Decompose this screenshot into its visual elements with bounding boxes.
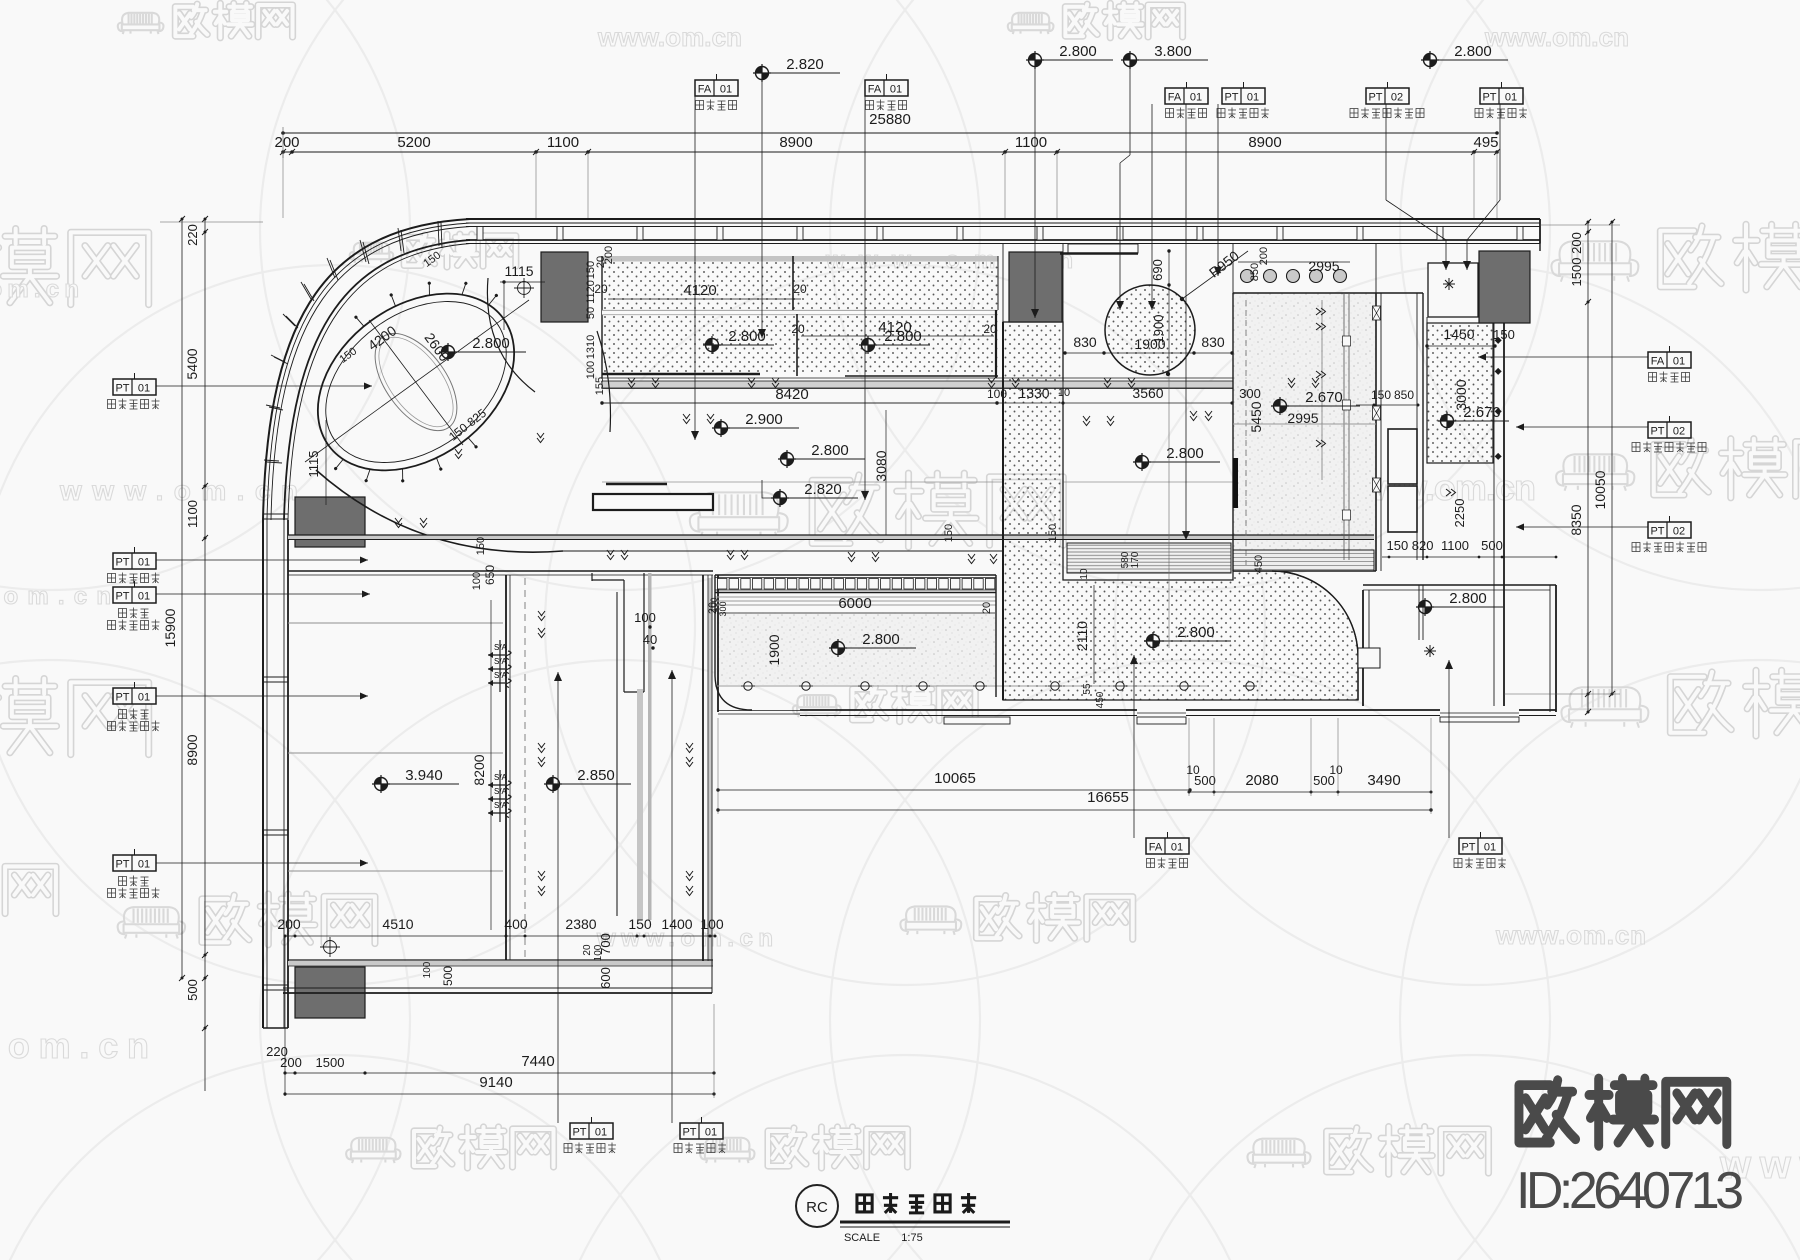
svg-text:01: 01 bbox=[1484, 842, 1496, 854]
svg-text:FA: FA bbox=[1149, 842, 1163, 854]
svg-text:PT: PT bbox=[115, 591, 129, 603]
svg-text:www.om.cn: www.om.cn bbox=[0, 276, 85, 303]
svg-text:01: 01 bbox=[138, 692, 150, 704]
svg-text:S/A: S/A bbox=[494, 671, 508, 680]
svg-text:4510: 4510 bbox=[382, 916, 413, 932]
svg-text:www.om.cn: www.om.cn bbox=[0, 583, 117, 610]
svg-text:2250: 2250 bbox=[1452, 499, 1467, 528]
svg-text:20: 20 bbox=[595, 256, 607, 268]
svg-text:650: 650 bbox=[483, 565, 497, 585]
svg-text:300: 300 bbox=[1239, 386, 1261, 401]
svg-text:01: 01 bbox=[1190, 92, 1202, 104]
svg-text:150: 150 bbox=[1493, 327, 1515, 342]
svg-text:02: 02 bbox=[1673, 526, 1685, 538]
svg-text:150: 150 bbox=[628, 916, 652, 932]
svg-text:25880: 25880 bbox=[869, 111, 911, 128]
svg-text:830: 830 bbox=[1073, 334, 1097, 350]
svg-text:FA: FA bbox=[698, 84, 712, 96]
svg-text:1400: 1400 bbox=[661, 916, 692, 932]
svg-text:150: 150 bbox=[943, 524, 955, 542]
svg-text:495: 495 bbox=[1473, 134, 1498, 151]
svg-text:155: 155 bbox=[594, 377, 606, 395]
svg-text:4120: 4120 bbox=[878, 319, 911, 336]
svg-text:1115: 1115 bbox=[306, 451, 321, 478]
svg-text:500: 500 bbox=[1481, 538, 1503, 553]
svg-text:2.800: 2.800 bbox=[811, 442, 849, 459]
svg-text:10050: 10050 bbox=[1592, 470, 1608, 509]
svg-text:2110: 2110 bbox=[1074, 621, 1090, 651]
svg-text:PT: PT bbox=[1461, 842, 1475, 854]
svg-text:01: 01 bbox=[138, 859, 150, 871]
svg-text:1500: 1500 bbox=[1569, 258, 1584, 287]
svg-text:1115: 1115 bbox=[504, 263, 533, 279]
svg-text:1100: 1100 bbox=[1015, 134, 1047, 151]
svg-text:20: 20 bbox=[791, 322, 805, 336]
svg-text:02: 02 bbox=[1673, 426, 1685, 438]
svg-text:1900: 1900 bbox=[766, 634, 782, 665]
svg-text:4120: 4120 bbox=[683, 282, 716, 299]
svg-text:200: 200 bbox=[1569, 232, 1584, 254]
svg-text:220: 220 bbox=[185, 224, 200, 246]
svg-text:RC: RC bbox=[806, 1199, 828, 1216]
svg-text:1100: 1100 bbox=[185, 500, 200, 528]
svg-text:100: 100 bbox=[585, 361, 597, 379]
svg-text:1310: 1310 bbox=[585, 335, 597, 359]
svg-text:01: 01 bbox=[138, 383, 150, 395]
svg-text:16655: 16655 bbox=[1087, 789, 1129, 806]
svg-text:2.900: 2.900 bbox=[745, 411, 783, 428]
svg-text:7440: 7440 bbox=[521, 1053, 554, 1070]
svg-text:3.800: 3.800 bbox=[1154, 43, 1192, 60]
svg-text:2.800: 2.800 bbox=[1166, 445, 1204, 462]
svg-text:1500: 1500 bbox=[316, 1055, 345, 1070]
svg-text:170: 170 bbox=[1130, 551, 1141, 568]
svg-text:PT: PT bbox=[115, 859, 129, 871]
svg-text:8900: 8900 bbox=[184, 734, 200, 765]
svg-text:FA: FA bbox=[1651, 356, 1665, 368]
svg-text:55: 55 bbox=[1082, 683, 1093, 695]
svg-text:20: 20 bbox=[582, 944, 593, 956]
svg-text:2.850: 2.850 bbox=[577, 767, 615, 784]
svg-text:200: 200 bbox=[274, 134, 299, 151]
svg-text:2.800: 2.800 bbox=[1177, 624, 1215, 641]
svg-text:PT: PT bbox=[115, 557, 129, 569]
svg-text:10: 10 bbox=[1058, 387, 1070, 399]
svg-text:1100: 1100 bbox=[547, 134, 579, 151]
svg-text:20: 20 bbox=[981, 602, 993, 614]
svg-text:ID:2640713: ID:2640713 bbox=[1516, 1162, 1744, 1220]
svg-text:8350: 8350 bbox=[1568, 504, 1584, 535]
svg-text:5450: 5450 bbox=[1248, 401, 1264, 432]
svg-text:01: 01 bbox=[1505, 92, 1517, 104]
svg-text:2.670: 2.670 bbox=[1305, 389, 1343, 406]
svg-text:www.om.cn: www.om.cn bbox=[0, 1025, 158, 1066]
svg-text:01: 01 bbox=[138, 557, 150, 569]
svg-text:1900: 1900 bbox=[1134, 336, 1165, 352]
svg-text:40: 40 bbox=[643, 632, 657, 647]
svg-text:2995: 2995 bbox=[1308, 258, 1339, 274]
svg-text:PT: PT bbox=[1650, 526, 1664, 538]
svg-text:01: 01 bbox=[1171, 842, 1183, 854]
svg-text:400: 400 bbox=[504, 916, 528, 932]
svg-text:150: 150 bbox=[1371, 388, 1391, 402]
svg-text:PT: PT bbox=[1224, 92, 1238, 104]
svg-text:2.800: 2.800 bbox=[1449, 590, 1487, 607]
svg-text:100: 100 bbox=[634, 610, 656, 625]
svg-text:S/A: S/A bbox=[494, 657, 508, 666]
svg-text:6000: 6000 bbox=[838, 595, 871, 612]
svg-text:www.om.cn: www.om.cn bbox=[597, 22, 748, 52]
svg-text:3560: 3560 bbox=[1132, 385, 1163, 401]
svg-text:2.800: 2.800 bbox=[1059, 43, 1097, 60]
svg-text:SCALE: SCALE bbox=[844, 1232, 880, 1244]
svg-text:PT: PT bbox=[682, 1127, 696, 1139]
svg-text:FA: FA bbox=[868, 84, 882, 96]
svg-text:20: 20 bbox=[983, 322, 997, 336]
svg-text:2.820: 2.820 bbox=[804, 481, 842, 498]
svg-text:450: 450 bbox=[1253, 555, 1265, 573]
svg-text:600: 600 bbox=[598, 967, 613, 989]
svg-text:150: 150 bbox=[475, 537, 487, 555]
svg-text:01: 01 bbox=[705, 1127, 717, 1139]
svg-text:500: 500 bbox=[185, 979, 200, 1001]
svg-text:200: 200 bbox=[277, 916, 301, 932]
svg-text:1120: 1120 bbox=[585, 280, 597, 304]
svg-text:8200: 8200 bbox=[471, 754, 487, 785]
svg-text:200: 200 bbox=[280, 1055, 302, 1070]
svg-text:FA: FA bbox=[1168, 92, 1182, 104]
svg-text:8900: 8900 bbox=[1248, 134, 1281, 151]
svg-text:500: 500 bbox=[441, 966, 455, 986]
svg-text:5400: 5400 bbox=[184, 348, 200, 379]
svg-text:5200: 5200 bbox=[397, 134, 430, 151]
svg-text:01: 01 bbox=[138, 591, 150, 603]
svg-text:1450: 1450 bbox=[1443, 326, 1474, 342]
svg-text:50: 50 bbox=[585, 307, 597, 319]
svg-text:20: 20 bbox=[793, 282, 807, 296]
svg-text:S/A: S/A bbox=[494, 787, 508, 796]
svg-text:2.820: 2.820 bbox=[786, 56, 824, 73]
svg-text:150 820: 150 820 bbox=[1387, 538, 1434, 553]
svg-text:PT: PT bbox=[115, 383, 129, 395]
svg-text:www.om.cn: www.om.cn bbox=[1484, 22, 1635, 52]
svg-text:3490: 3490 bbox=[1367, 772, 1400, 789]
svg-text:9140: 9140 bbox=[479, 1074, 512, 1091]
svg-text:2380: 2380 bbox=[565, 916, 596, 932]
svg-text:2.800: 2.800 bbox=[862, 631, 900, 648]
svg-text:100: 100 bbox=[422, 961, 433, 978]
svg-text:850: 850 bbox=[1394, 388, 1414, 402]
svg-text:150: 150 bbox=[1047, 524, 1059, 542]
svg-text:PT: PT bbox=[1650, 426, 1664, 438]
svg-text:830: 830 bbox=[1201, 334, 1225, 350]
svg-text:2080: 2080 bbox=[1245, 772, 1278, 789]
svg-text:S/A: S/A bbox=[494, 643, 508, 652]
svg-text:3000: 3000 bbox=[1453, 379, 1469, 410]
svg-text:10: 10 bbox=[1079, 568, 1090, 580]
svg-text:8900: 8900 bbox=[779, 134, 812, 151]
svg-text:690: 690 bbox=[1150, 259, 1165, 281]
svg-text:PT: PT bbox=[1482, 92, 1496, 104]
svg-text:3080: 3080 bbox=[873, 450, 889, 481]
svg-text:2.800: 2.800 bbox=[472, 335, 510, 352]
svg-text:PT: PT bbox=[1368, 92, 1382, 104]
svg-text:01: 01 bbox=[720, 84, 732, 96]
svg-text:8420: 8420 bbox=[775, 386, 808, 403]
svg-text:200: 200 bbox=[1258, 247, 1270, 265]
svg-text:2995: 2995 bbox=[1287, 410, 1318, 426]
svg-text:3.940: 3.940 bbox=[405, 767, 443, 784]
svg-text:02: 02 bbox=[1391, 92, 1403, 104]
svg-text:01: 01 bbox=[1673, 356, 1685, 368]
svg-text:01: 01 bbox=[890, 84, 902, 96]
svg-text:2.800: 2.800 bbox=[1454, 43, 1492, 60]
svg-text:450: 450 bbox=[1095, 691, 1106, 708]
svg-text:1:75: 1:75 bbox=[901, 1232, 922, 1244]
svg-text:100: 100 bbox=[471, 572, 483, 590]
svg-text:10065: 10065 bbox=[934, 770, 976, 787]
svg-text:10: 10 bbox=[1329, 763, 1343, 777]
svg-text:100: 100 bbox=[593, 944, 604, 961]
svg-text:500: 500 bbox=[1194, 773, 1216, 788]
svg-text:www.om.cn: www.om.cn bbox=[1495, 920, 1652, 950]
svg-text:300: 300 bbox=[718, 601, 728, 616]
svg-text:1330: 1330 bbox=[1018, 385, 1049, 401]
svg-text:15900: 15900 bbox=[162, 608, 178, 647]
svg-text:S/A: S/A bbox=[494, 773, 508, 782]
svg-text:PT: PT bbox=[572, 1127, 586, 1139]
svg-text:1100: 1100 bbox=[1441, 538, 1469, 553]
svg-text:S/A: S/A bbox=[494, 801, 508, 810]
svg-text:100: 100 bbox=[700, 916, 724, 932]
svg-text:100: 100 bbox=[987, 387, 1007, 401]
svg-text:01: 01 bbox=[1247, 92, 1259, 104]
svg-text:PT: PT bbox=[115, 692, 129, 704]
svg-text:01: 01 bbox=[595, 1127, 607, 1139]
svg-text:2.800: 2.800 bbox=[728, 328, 766, 345]
